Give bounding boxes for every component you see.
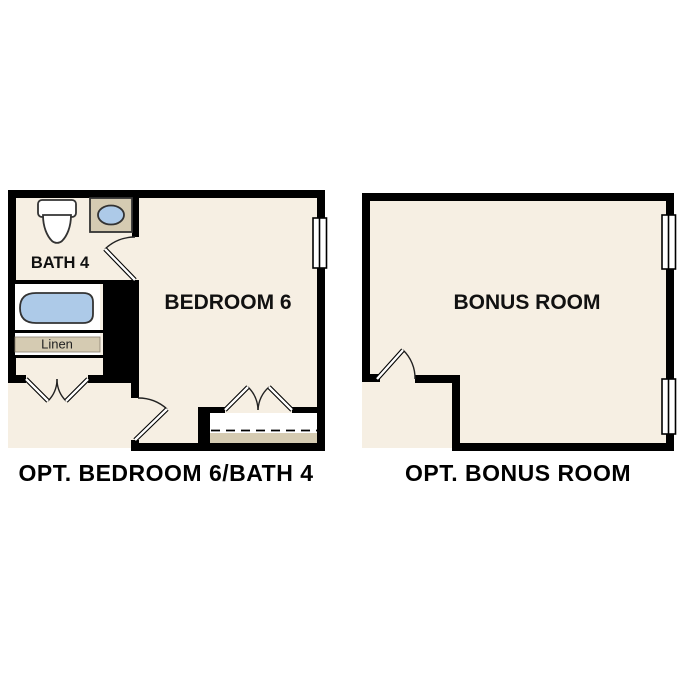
window-pane-outer <box>669 215 676 269</box>
bathtub <box>20 293 93 323</box>
bedroom-window <box>313 218 327 268</box>
sink-basin <box>98 206 124 225</box>
closet-shelf <box>210 433 317 443</box>
floorplan-canvas: Linen <box>0 0 687 687</box>
wall-bedroom-door-jamb-bottom <box>131 440 139 451</box>
bonus-window-upper <box>662 215 676 269</box>
wall-closet-jamb-left <box>198 407 225 413</box>
right-plan-caption: OPT. BONUS ROOM <box>405 460 631 486</box>
window-pane-outer <box>669 379 676 434</box>
bedroom-room-label: BEDROOM 6 <box>164 291 291 314</box>
bonus-floor <box>362 193 674 448</box>
wall-closet-jamb-right <box>292 407 317 413</box>
left-plan-caption: OPT. BEDROOM 6/BATH 4 <box>18 460 313 486</box>
wall-closet-left <box>198 407 210 451</box>
linen-label: Linen <box>41 337 73 352</box>
bonus-room-label: BONUS ROOM <box>454 291 601 314</box>
right-floorplan: BONUS ROOM OPT. BONUS ROOM <box>362 193 676 486</box>
wall-hall-door-jamb-right <box>88 375 103 383</box>
bonus-wall-top <box>362 193 674 201</box>
wall-tub-bottom <box>15 330 103 333</box>
wall-hall-door-jamb-left <box>8 375 26 383</box>
bonus-window-lower <box>662 379 676 434</box>
wall-bottom <box>131 443 325 451</box>
wall-center-block <box>103 280 139 383</box>
wall-linen-bottom <box>15 355 103 358</box>
window-pane-outer <box>320 218 327 268</box>
bonus-wall-left <box>362 193 370 380</box>
bath-room-label: BATH 4 <box>31 254 90 272</box>
wall-top <box>8 190 325 198</box>
sink-vanity <box>90 198 132 232</box>
wall-bath-divider <box>132 198 139 237</box>
bonus-wall-bottom <box>452 443 674 451</box>
floorplan-drawing: Linen <box>0 0 687 687</box>
left-floorplan: Linen <box>8 190 327 486</box>
bonus-notch-wall-vertical <box>452 375 460 451</box>
wall-bedroom-door-jamb-top <box>131 383 139 398</box>
bedroom-closet <box>210 413 317 443</box>
wall-tub-top <box>15 280 103 284</box>
